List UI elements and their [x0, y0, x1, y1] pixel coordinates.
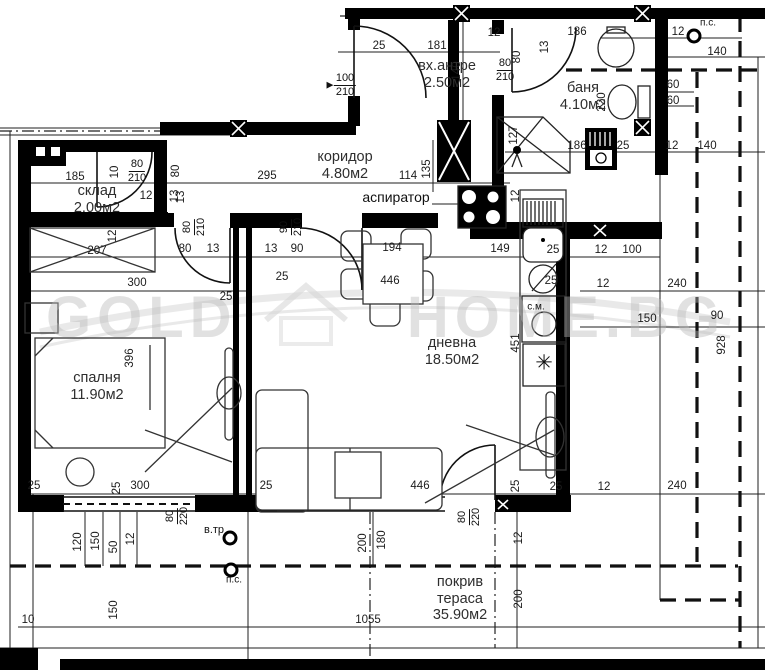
column-symbols [230, 5, 651, 511]
watermark-text-home: HOME.BG [407, 284, 726, 351]
watermark: GOLD HOME.BG [46, 284, 726, 351]
floor-plan: GOLD HOME.BG 185101280132518114012801318… [0, 0, 765, 672]
door-arcs [97, 26, 576, 500]
watermark-text-gold: GOLD [46, 284, 238, 351]
